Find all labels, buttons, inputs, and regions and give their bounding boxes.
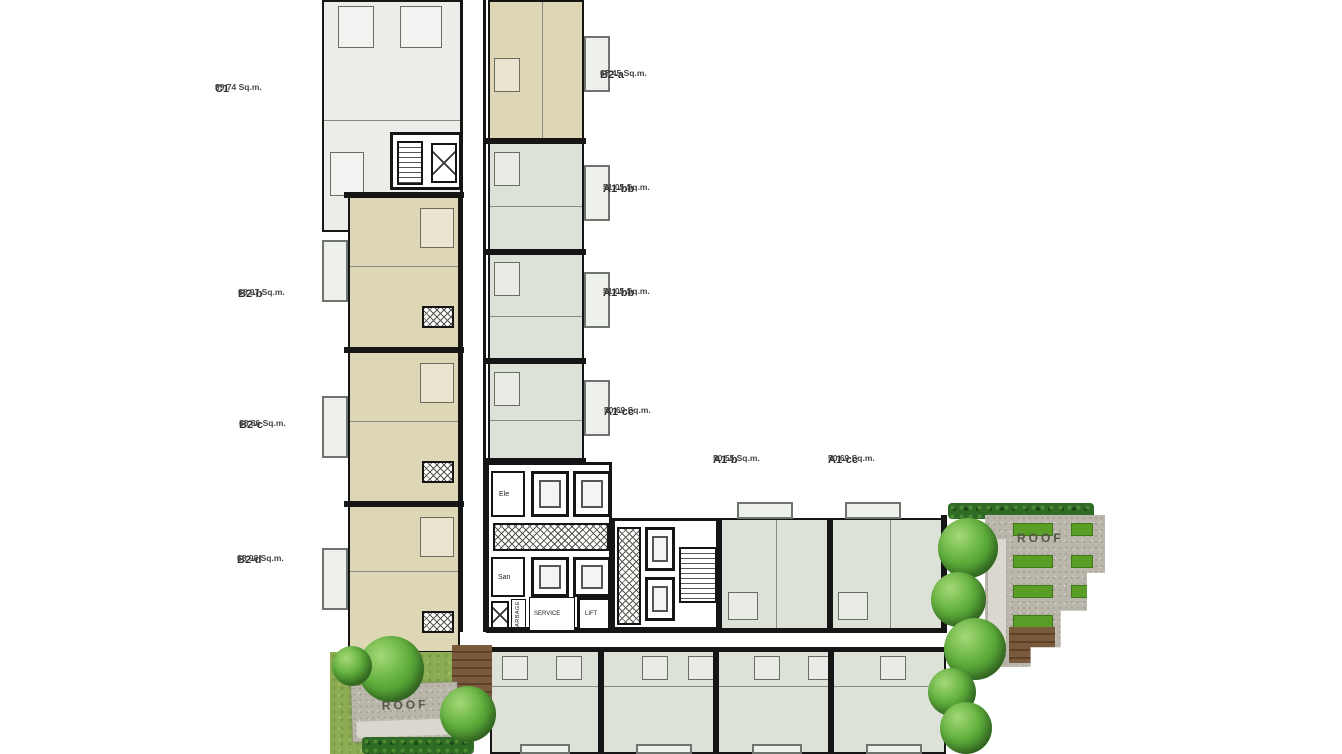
san-room-label: San — [498, 574, 510, 581]
unit-area: 68.86 Sq.m. — [239, 419, 286, 429]
bathroom-box — [556, 656, 582, 680]
unit-B2-b — [348, 196, 460, 351]
core-left: Ele San GARBAGE SERVICE LIFT — [486, 462, 612, 630]
unit-A1-bb-2 — [488, 252, 584, 362]
bathroom-box — [330, 152, 364, 196]
wall — [713, 652, 719, 754]
floor-plan: Ele San GARBAGE SERVICE LIFT — [0, 0, 1342, 754]
balcony — [845, 502, 901, 519]
corridor-horizontal — [486, 630, 946, 650]
planter — [1071, 555, 1093, 568]
garbage-chute: GARBAGE — [511, 599, 526, 631]
balcony — [584, 272, 610, 328]
tree — [332, 646, 372, 686]
wall — [344, 347, 464, 353]
balcony — [866, 744, 922, 754]
tree — [938, 518, 998, 578]
bathroom-box — [502, 656, 528, 680]
bathroom-box — [494, 58, 520, 92]
lobby-hatch-floor — [493, 523, 609, 551]
unit-area: 68.98 Sq.m. — [237, 554, 284, 564]
ele-room-label: Ele — [499, 491, 509, 498]
unit-area: 67.45 Sq.m. — [600, 69, 647, 79]
wall — [828, 652, 834, 754]
unit-A1-b — [720, 518, 830, 630]
lobby-hatch-floor — [617, 527, 641, 625]
wall — [716, 518, 722, 630]
lift-shaft — [531, 557, 569, 597]
balcony — [520, 744, 570, 754]
unit-area: 99.74 Sq.m. — [215, 83, 262, 93]
lift-cab — [581, 565, 603, 589]
interior-wall — [350, 421, 458, 422]
balcony — [322, 396, 348, 458]
planter — [1013, 585, 1053, 598]
lift-shaft — [573, 471, 611, 517]
wall — [486, 249, 586, 255]
bathroom-box — [728, 592, 758, 620]
lift-shaft — [645, 527, 675, 571]
unit-area: 51.05 Sq.m. — [603, 287, 650, 297]
unit-A1-bb-1 — [488, 142, 584, 252]
unit-B2-d — [348, 505, 460, 655]
lift-shaft-icon — [431, 143, 457, 183]
lift-shaft — [573, 557, 611, 597]
bathroom-box — [338, 6, 374, 48]
bathroom-box — [400, 6, 442, 48]
bathroom-box — [420, 517, 454, 557]
interior-wall — [350, 266, 458, 267]
lift-cab — [539, 565, 561, 589]
bathroom-box — [494, 372, 520, 406]
wall — [486, 138, 586, 144]
balcony — [737, 502, 793, 519]
garbage-label: GARBAGE — [515, 601, 521, 632]
stair-icon — [679, 547, 717, 603]
unit-area: 68.97 Sq.m. — [238, 288, 285, 298]
interior-wall — [490, 206, 582, 207]
bathroom-box — [494, 152, 520, 186]
unit-area: 51.05 Sq.m. — [603, 183, 650, 193]
bathroom-box — [838, 592, 868, 620]
bathroom-box — [420, 363, 454, 403]
tree — [440, 686, 496, 742]
service-room: SERVICE — [529, 597, 575, 631]
interior-wall — [542, 2, 543, 140]
unit-B2-a — [488, 0, 584, 142]
unit-area: 50.69 Sq.m. — [604, 406, 651, 416]
core-right — [612, 518, 720, 630]
balcony — [322, 548, 348, 610]
unit-A1-cc-2 — [830, 518, 946, 630]
unit-B2-c — [348, 351, 460, 505]
kitchen-hatch — [422, 306, 454, 328]
service-lift-label: LIFT — [585, 611, 597, 617]
lift-cab — [652, 536, 669, 563]
balcony — [636, 744, 692, 754]
stair-icon — [397, 141, 423, 185]
interior-wall — [350, 571, 458, 572]
service-label: SERVICE — [534, 611, 560, 617]
shaft-icon — [491, 601, 509, 629]
wall — [598, 652, 604, 754]
lift-shaft — [531, 471, 569, 517]
unit-area: 50.69 Sq.m. — [828, 454, 875, 464]
kitchen-hatch — [422, 611, 454, 633]
lift-shaft — [645, 577, 675, 621]
interior-wall — [490, 316, 582, 317]
lift-cab — [539, 480, 561, 508]
bathroom-box — [754, 656, 780, 680]
planter — [1071, 585, 1093, 598]
bathroom-box — [494, 262, 520, 296]
bathroom-box — [688, 656, 714, 680]
planter — [1013, 555, 1053, 568]
roof-label-right: ROOF — [1017, 531, 1064, 545]
san-room: San — [491, 557, 525, 597]
balcony — [322, 240, 348, 302]
wood-deck — [1009, 627, 1055, 663]
interior-wall — [490, 420, 582, 421]
unit-area: 50.55 Sq.m. — [713, 454, 760, 464]
unit-A1-cc-1 — [488, 362, 584, 462]
bathroom-box — [420, 208, 454, 248]
balcony — [584, 36, 610, 92]
corridor-vertical — [460, 0, 486, 632]
lift-cab — [581, 480, 603, 508]
wall — [344, 192, 464, 198]
planter — [1071, 523, 1093, 536]
interior-wall — [776, 520, 777, 628]
kitchen-hatch — [422, 461, 454, 483]
tree — [940, 702, 992, 754]
ele-room: Ele — [491, 471, 525, 517]
wall — [486, 358, 586, 364]
bathroom-box — [642, 656, 668, 680]
interior-wall — [324, 120, 460, 121]
wall — [344, 501, 464, 507]
interior-wall — [890, 520, 891, 628]
stair-core — [390, 132, 462, 190]
lift-cab — [652, 586, 669, 613]
service-lift: LIFT — [577, 597, 611, 631]
wall — [827, 518, 833, 630]
balcony — [752, 744, 802, 754]
bathroom-box — [880, 656, 906, 680]
